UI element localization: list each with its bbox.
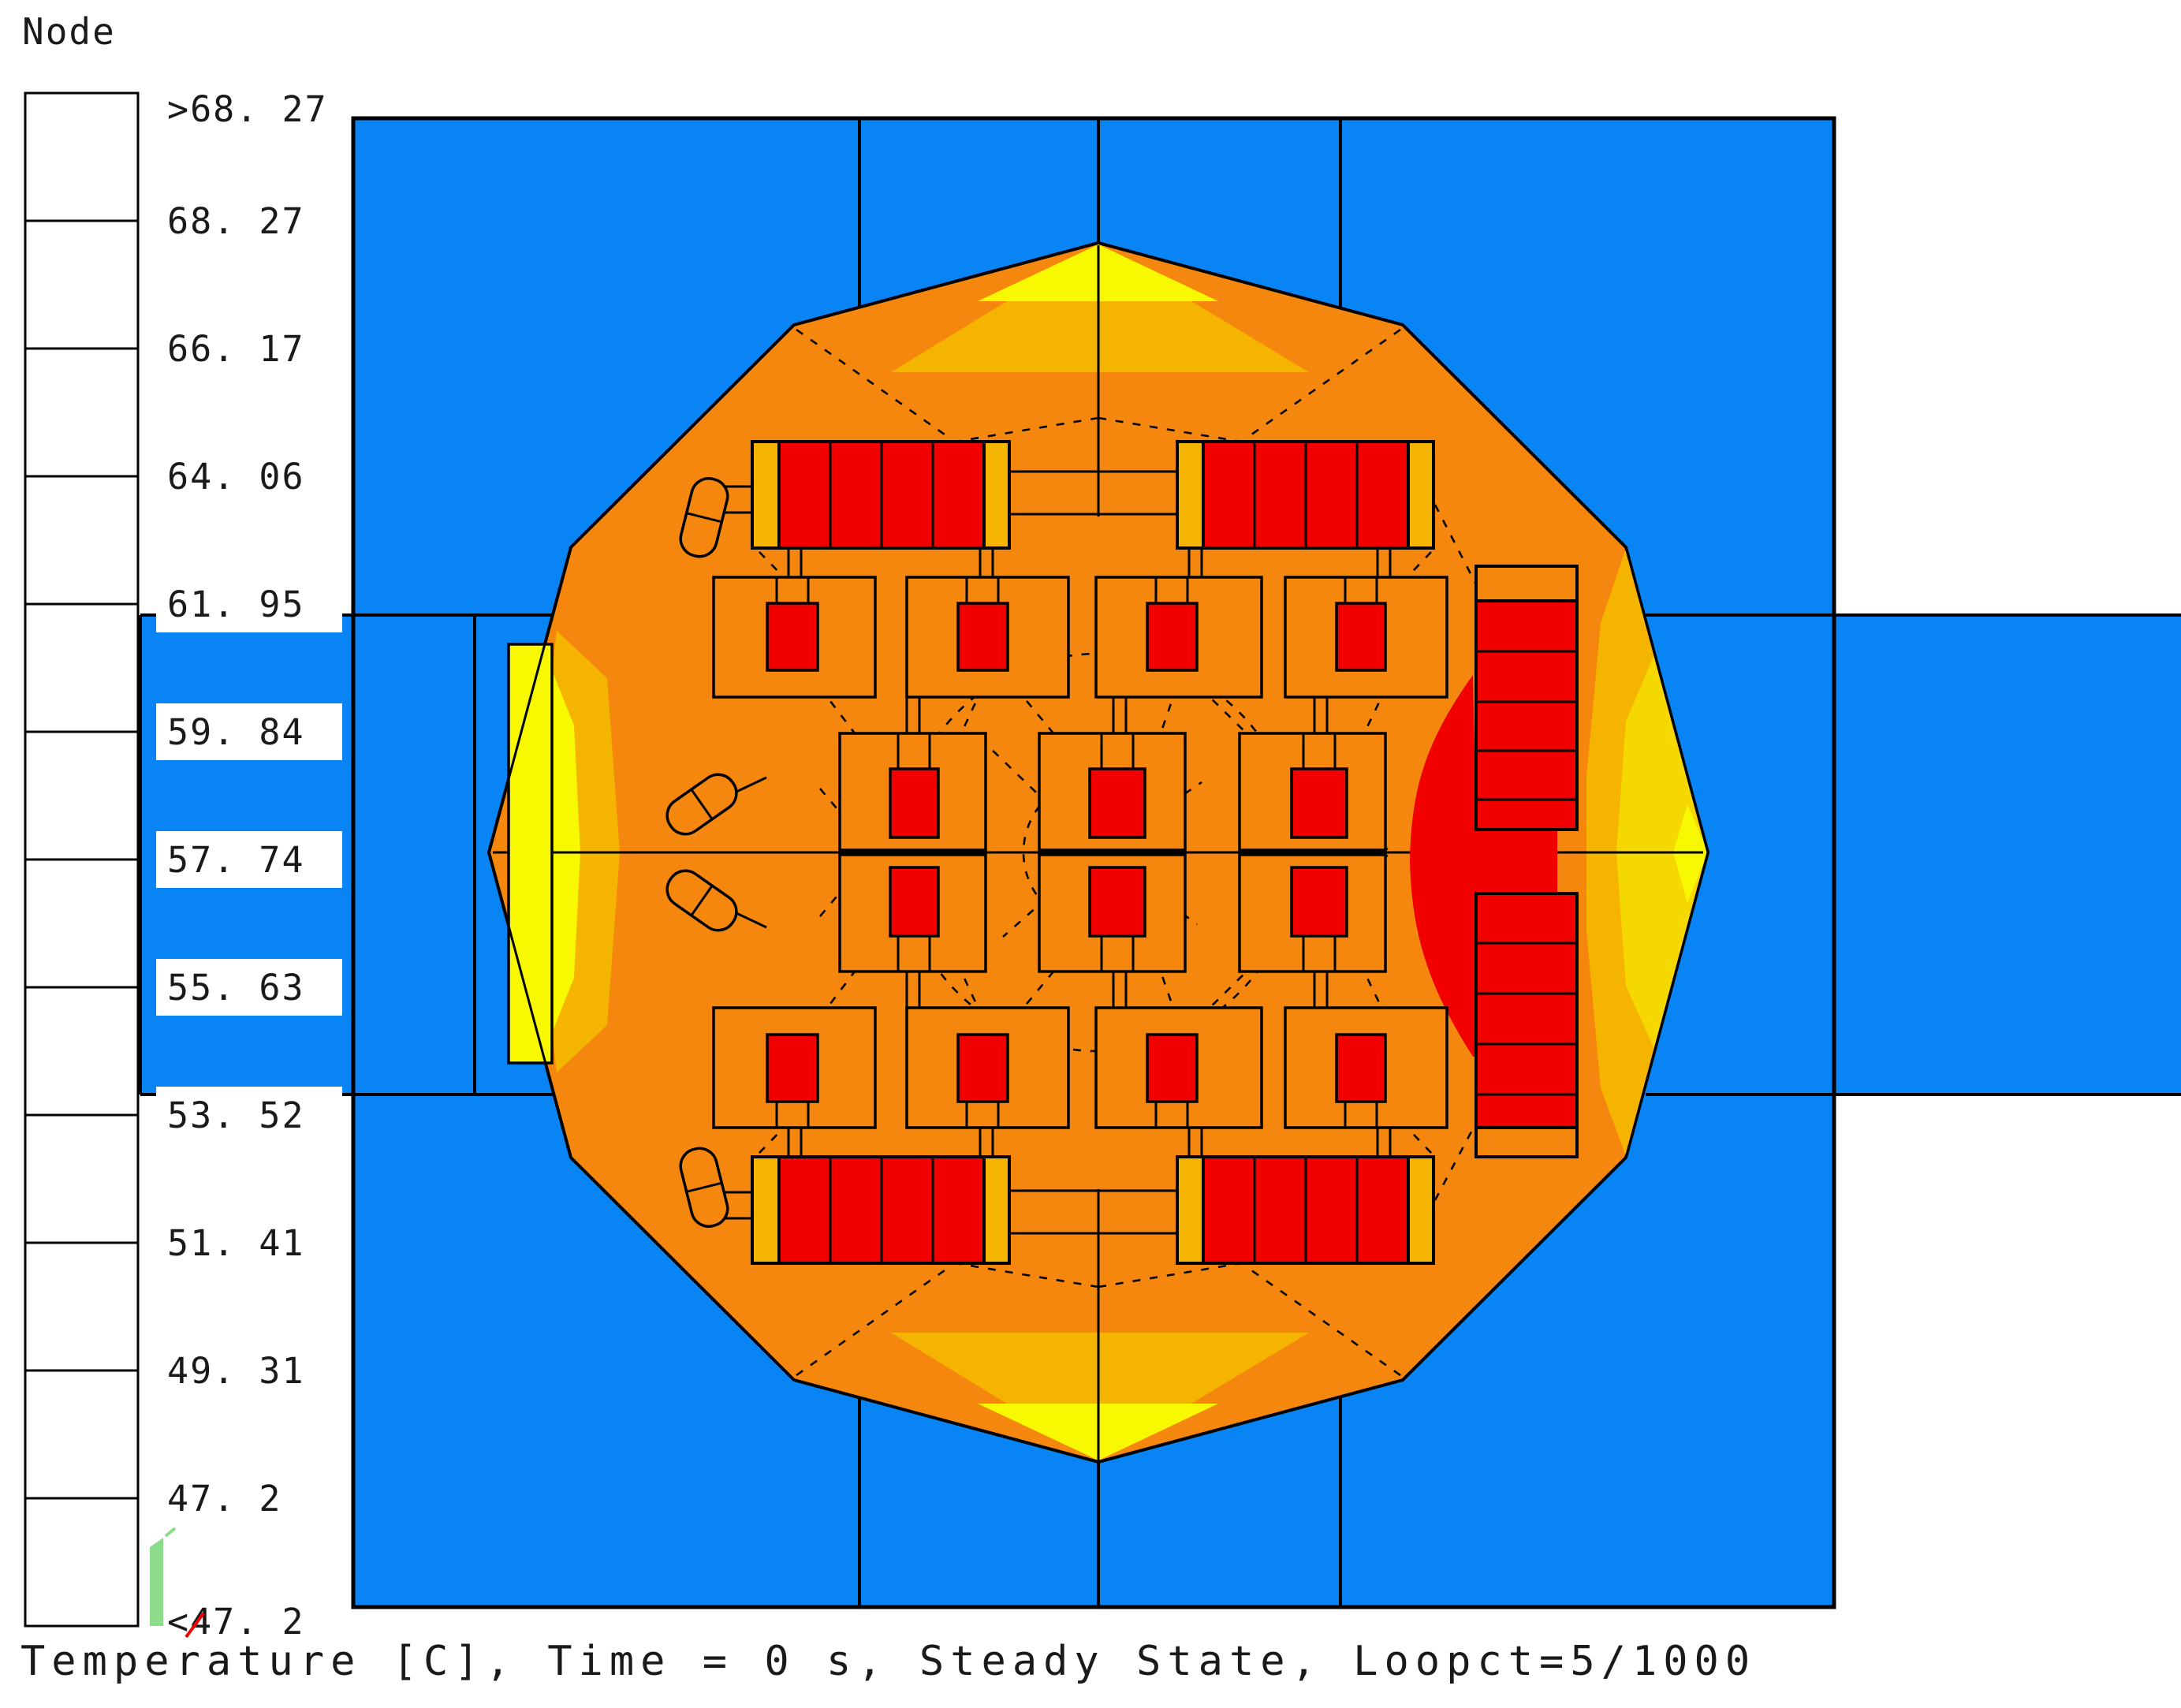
legend-label: 68. 27 [167, 200, 305, 242]
legend-band-navy [25, 1498, 138, 1626]
fuel-bar-top-right [1177, 442, 1433, 548]
stack-red-column [1476, 601, 1577, 830]
cursor-marker [150, 1538, 163, 1626]
legend-label: 49. 31 [167, 1350, 305, 1392]
fuel-bar-bottom-right [1177, 1157, 1433, 1263]
assembly-row-3 [840, 733, 1385, 850]
fuel-bar-bottom-left [752, 1157, 1009, 1263]
fuel-block [890, 769, 938, 837]
stack-red-column [1476, 893, 1577, 1128]
legend-band-yellow-green [25, 732, 138, 860]
legend-label: 53. 52 [167, 1095, 305, 1136]
legend-label: 51. 41 [167, 1222, 305, 1264]
right-duct [1646, 615, 2181, 1095]
legend-band-orange [25, 349, 138, 476]
fuel-block [1337, 1035, 1385, 1102]
fuel-block [1292, 769, 1347, 837]
fuel-block [1090, 769, 1145, 837]
legend-band-cyan [25, 1115, 138, 1243]
legend-band-sky-blue [25, 1243, 138, 1371]
legend-band-red [25, 221, 138, 349]
legend-band-spring-green [25, 987, 138, 1115]
plot-caption: Temperature [C], Time = 0 s, Steady Stat… [21, 1638, 1756, 1685]
legend-label: 61. 95 [167, 584, 305, 625]
legend-label: 55. 63 [167, 967, 305, 1009]
fuel-block [890, 867, 938, 936]
legend-label: 57. 74 [167, 839, 305, 881]
left-window-plate [509, 644, 552, 1063]
legend-band-green [25, 860, 138, 987]
fuel-block [1337, 603, 1385, 670]
thermal-plot-page: >68. 27 68. 27 66. 17 64. 06 61. 95 59. … [0, 0, 2181, 1708]
fuel-block [1147, 603, 1197, 670]
assembly-row-4 [840, 855, 1385, 971]
heater-stack-lower [1476, 893, 1577, 1157]
legend-band-yellow [25, 604, 138, 732]
legend-band-blue [25, 1371, 138, 1498]
fuel-block [767, 1035, 818, 1102]
legend-label: 47. 2 [167, 1478, 281, 1520]
legend-label: 59. 84 [167, 711, 305, 753]
thermal-contour-canvas: >68. 27 68. 27 66. 17 64. 06 61. 95 59. … [0, 0, 2181, 1708]
heater-stack-upper [1476, 566, 1577, 830]
legend-title: Node [22, 10, 116, 53]
legend-color-scale [25, 93, 138, 1626]
fuel-block [958, 1035, 1008, 1102]
cursor-tick [166, 1528, 175, 1536]
fuel-block [767, 603, 818, 670]
fuel-block [1090, 867, 1145, 936]
fuel-block [958, 603, 1008, 670]
legend-label: >68. 27 [167, 88, 328, 130]
fuel-bar-top-left [752, 442, 1009, 548]
legend-band-magenta [25, 93, 138, 221]
legend-label: 64. 06 [167, 456, 305, 498]
fuel-block [1292, 867, 1347, 936]
legend-band-amber [25, 476, 138, 604]
fuel-block [1147, 1035, 1197, 1102]
legend-label: 66. 17 [167, 328, 305, 370]
